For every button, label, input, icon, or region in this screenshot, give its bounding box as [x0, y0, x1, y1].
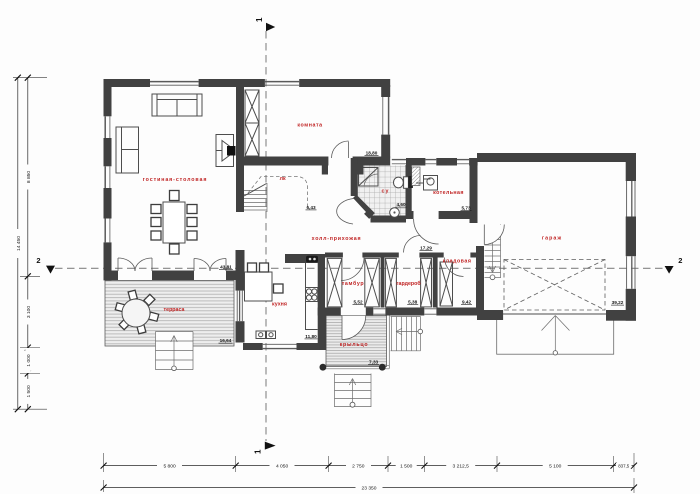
svg-text:5 100: 5 100: [549, 464, 562, 470]
svg-text:3 100: 3 100: [26, 306, 32, 319]
svg-text:3 212,5: 3 212,5: [453, 464, 470, 470]
svg-text:лк: лк: [280, 176, 286, 182]
svg-text:2 750: 2 750: [352, 464, 365, 470]
svg-text:комната: комната: [297, 123, 322, 129]
svg-text:16,64: 16,64: [220, 338, 232, 343]
svg-text:1 000: 1 000: [26, 354, 32, 367]
svg-text:6,43: 6,43: [306, 205, 316, 210]
svg-text:837,5: 837,5: [618, 463, 630, 468]
svg-text:39,22: 39,22: [612, 300, 624, 305]
svg-text:5 800: 5 800: [163, 464, 176, 470]
svg-text:4 050: 4 050: [276, 464, 289, 470]
svg-text:5,52: 5,52: [353, 300, 363, 305]
svg-text:18,80: 18,80: [366, 151, 378, 156]
svg-text:гостиная-столовая: гостиная-столовая: [143, 177, 208, 183]
svg-text:5,73: 5,73: [461, 206, 471, 211]
svg-text:гараж: гараж: [542, 236, 562, 242]
svg-text:котельная: котельная: [433, 190, 464, 196]
svg-text:1: 1: [254, 449, 263, 454]
svg-text:гардероб: гардероб: [396, 280, 421, 287]
svg-text:7,33: 7,33: [369, 360, 379, 365]
svg-text:43,81: 43,81: [220, 265, 232, 270]
svg-text:1: 1: [255, 17, 264, 22]
svg-text:14 450: 14 450: [16, 236, 22, 251]
svg-text:11,80: 11,80: [305, 334, 317, 339]
svg-text:1 500: 1 500: [26, 385, 32, 398]
svg-text:тамбур: тамбур: [342, 280, 365, 287]
svg-text:су: су: [381, 189, 389, 195]
svg-text:терраса: терраса: [164, 307, 185, 313]
svg-text:1 500: 1 500: [400, 464, 413, 470]
svg-text:крыльцо: крыльцо: [340, 342, 369, 348]
svg-text:5,38: 5,38: [408, 300, 418, 305]
svg-text:8 850: 8 850: [26, 171, 32, 184]
svg-text:23 350: 23 350: [362, 485, 377, 491]
svg-text:2: 2: [36, 256, 40, 265]
svg-text:кухня: кухня: [272, 302, 287, 308]
svg-text:2: 2: [678, 256, 682, 265]
svg-text:9,42: 9,42: [462, 300, 472, 305]
svg-text:кладовая: кладовая: [443, 259, 472, 265]
svg-text:4,60: 4,60: [396, 202, 406, 207]
svg-text:холл-прихожая: холл-прихожая: [312, 236, 362, 242]
svg-text:17,29: 17,29: [420, 246, 432, 251]
